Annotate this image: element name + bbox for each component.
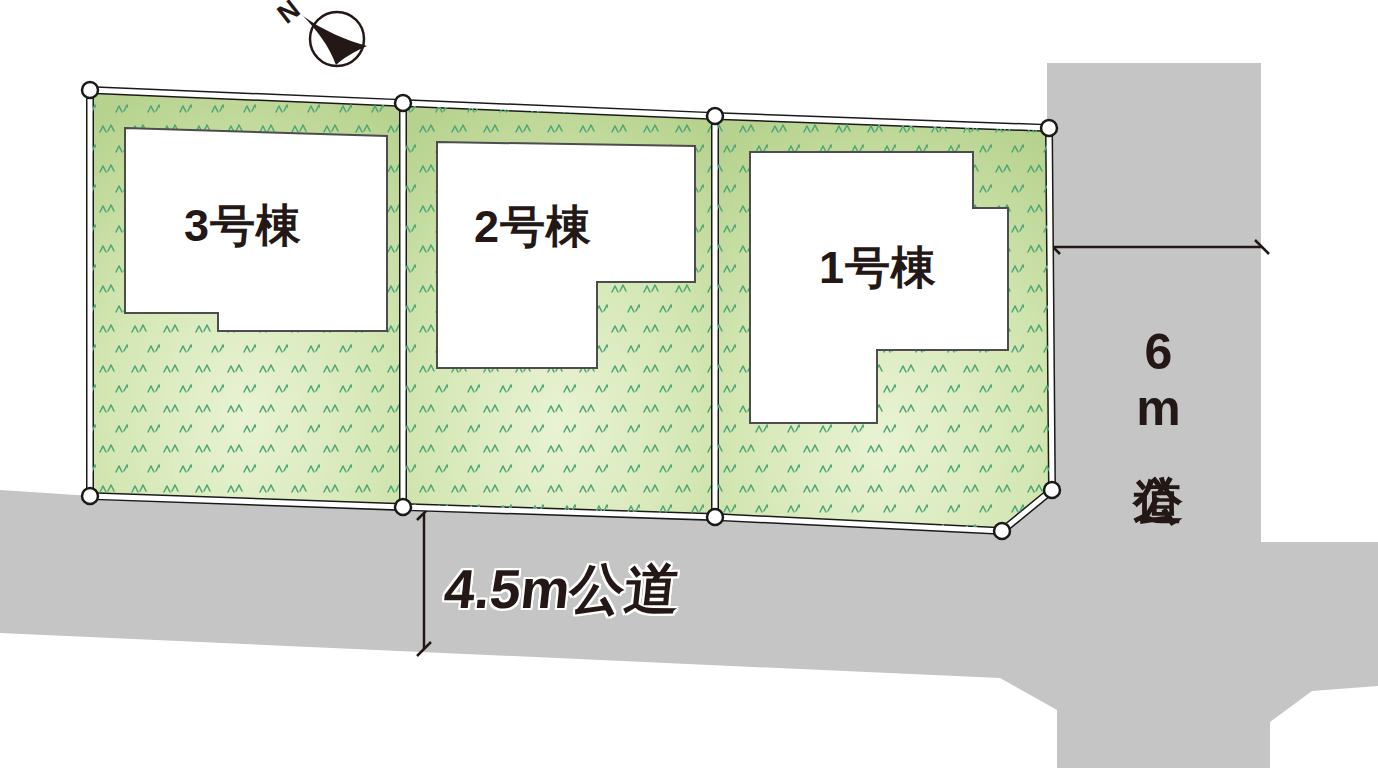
boundary-point xyxy=(994,523,1010,539)
lot-layout-diagram: N 3号棟 2号棟 1号棟 4.5m公道 6m公道 xyxy=(0,0,1378,768)
boundary-point xyxy=(82,488,98,504)
lot-3-label: 3号棟 xyxy=(184,196,302,256)
road-label-6m: 6m公道 xyxy=(1132,324,1185,436)
boundary-point xyxy=(707,108,723,124)
boundary-point xyxy=(82,82,98,98)
north-compass-icon xyxy=(303,12,367,66)
boundary-point xyxy=(395,95,411,111)
boundary-point xyxy=(395,499,411,515)
boundary-point xyxy=(1041,120,1057,136)
lot-1-label: 1号棟 xyxy=(819,238,937,298)
boundary-point xyxy=(707,509,723,525)
road-label-4p5m: 4.5m公道 xyxy=(440,553,683,627)
boundary-point xyxy=(1044,482,1060,498)
lot-2-label: 2号棟 xyxy=(474,197,592,257)
